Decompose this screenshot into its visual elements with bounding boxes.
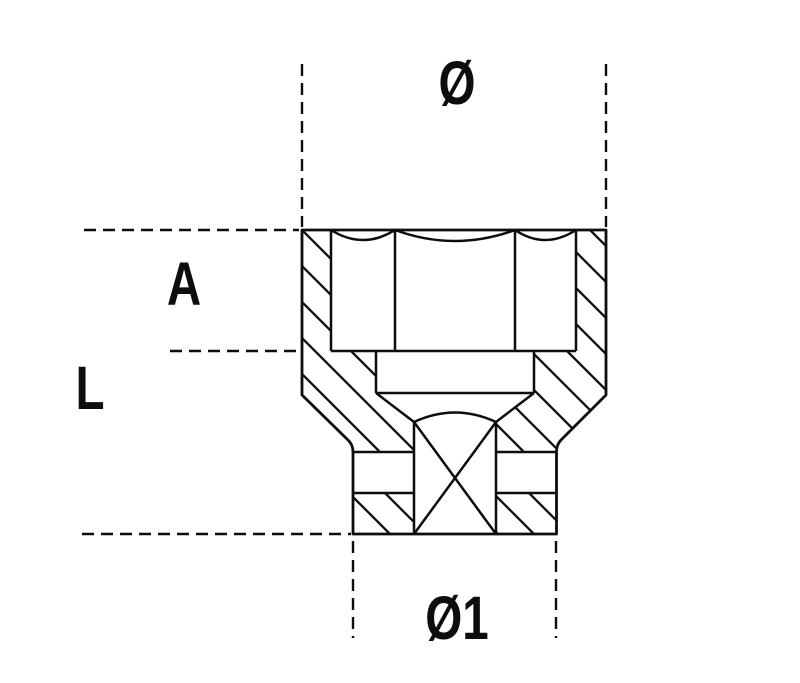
technical-drawing-canvas: Ø A L Ø1 [0,0,800,683]
dimension-label-diameter-bottom: Ø1 [395,588,520,649]
section-hatching [302,230,606,534]
dimension-label-length-l: L [28,358,153,419]
dimension-label-diameter-top: Ø [395,53,520,114]
dimension-label-depth-a: A [122,254,247,315]
